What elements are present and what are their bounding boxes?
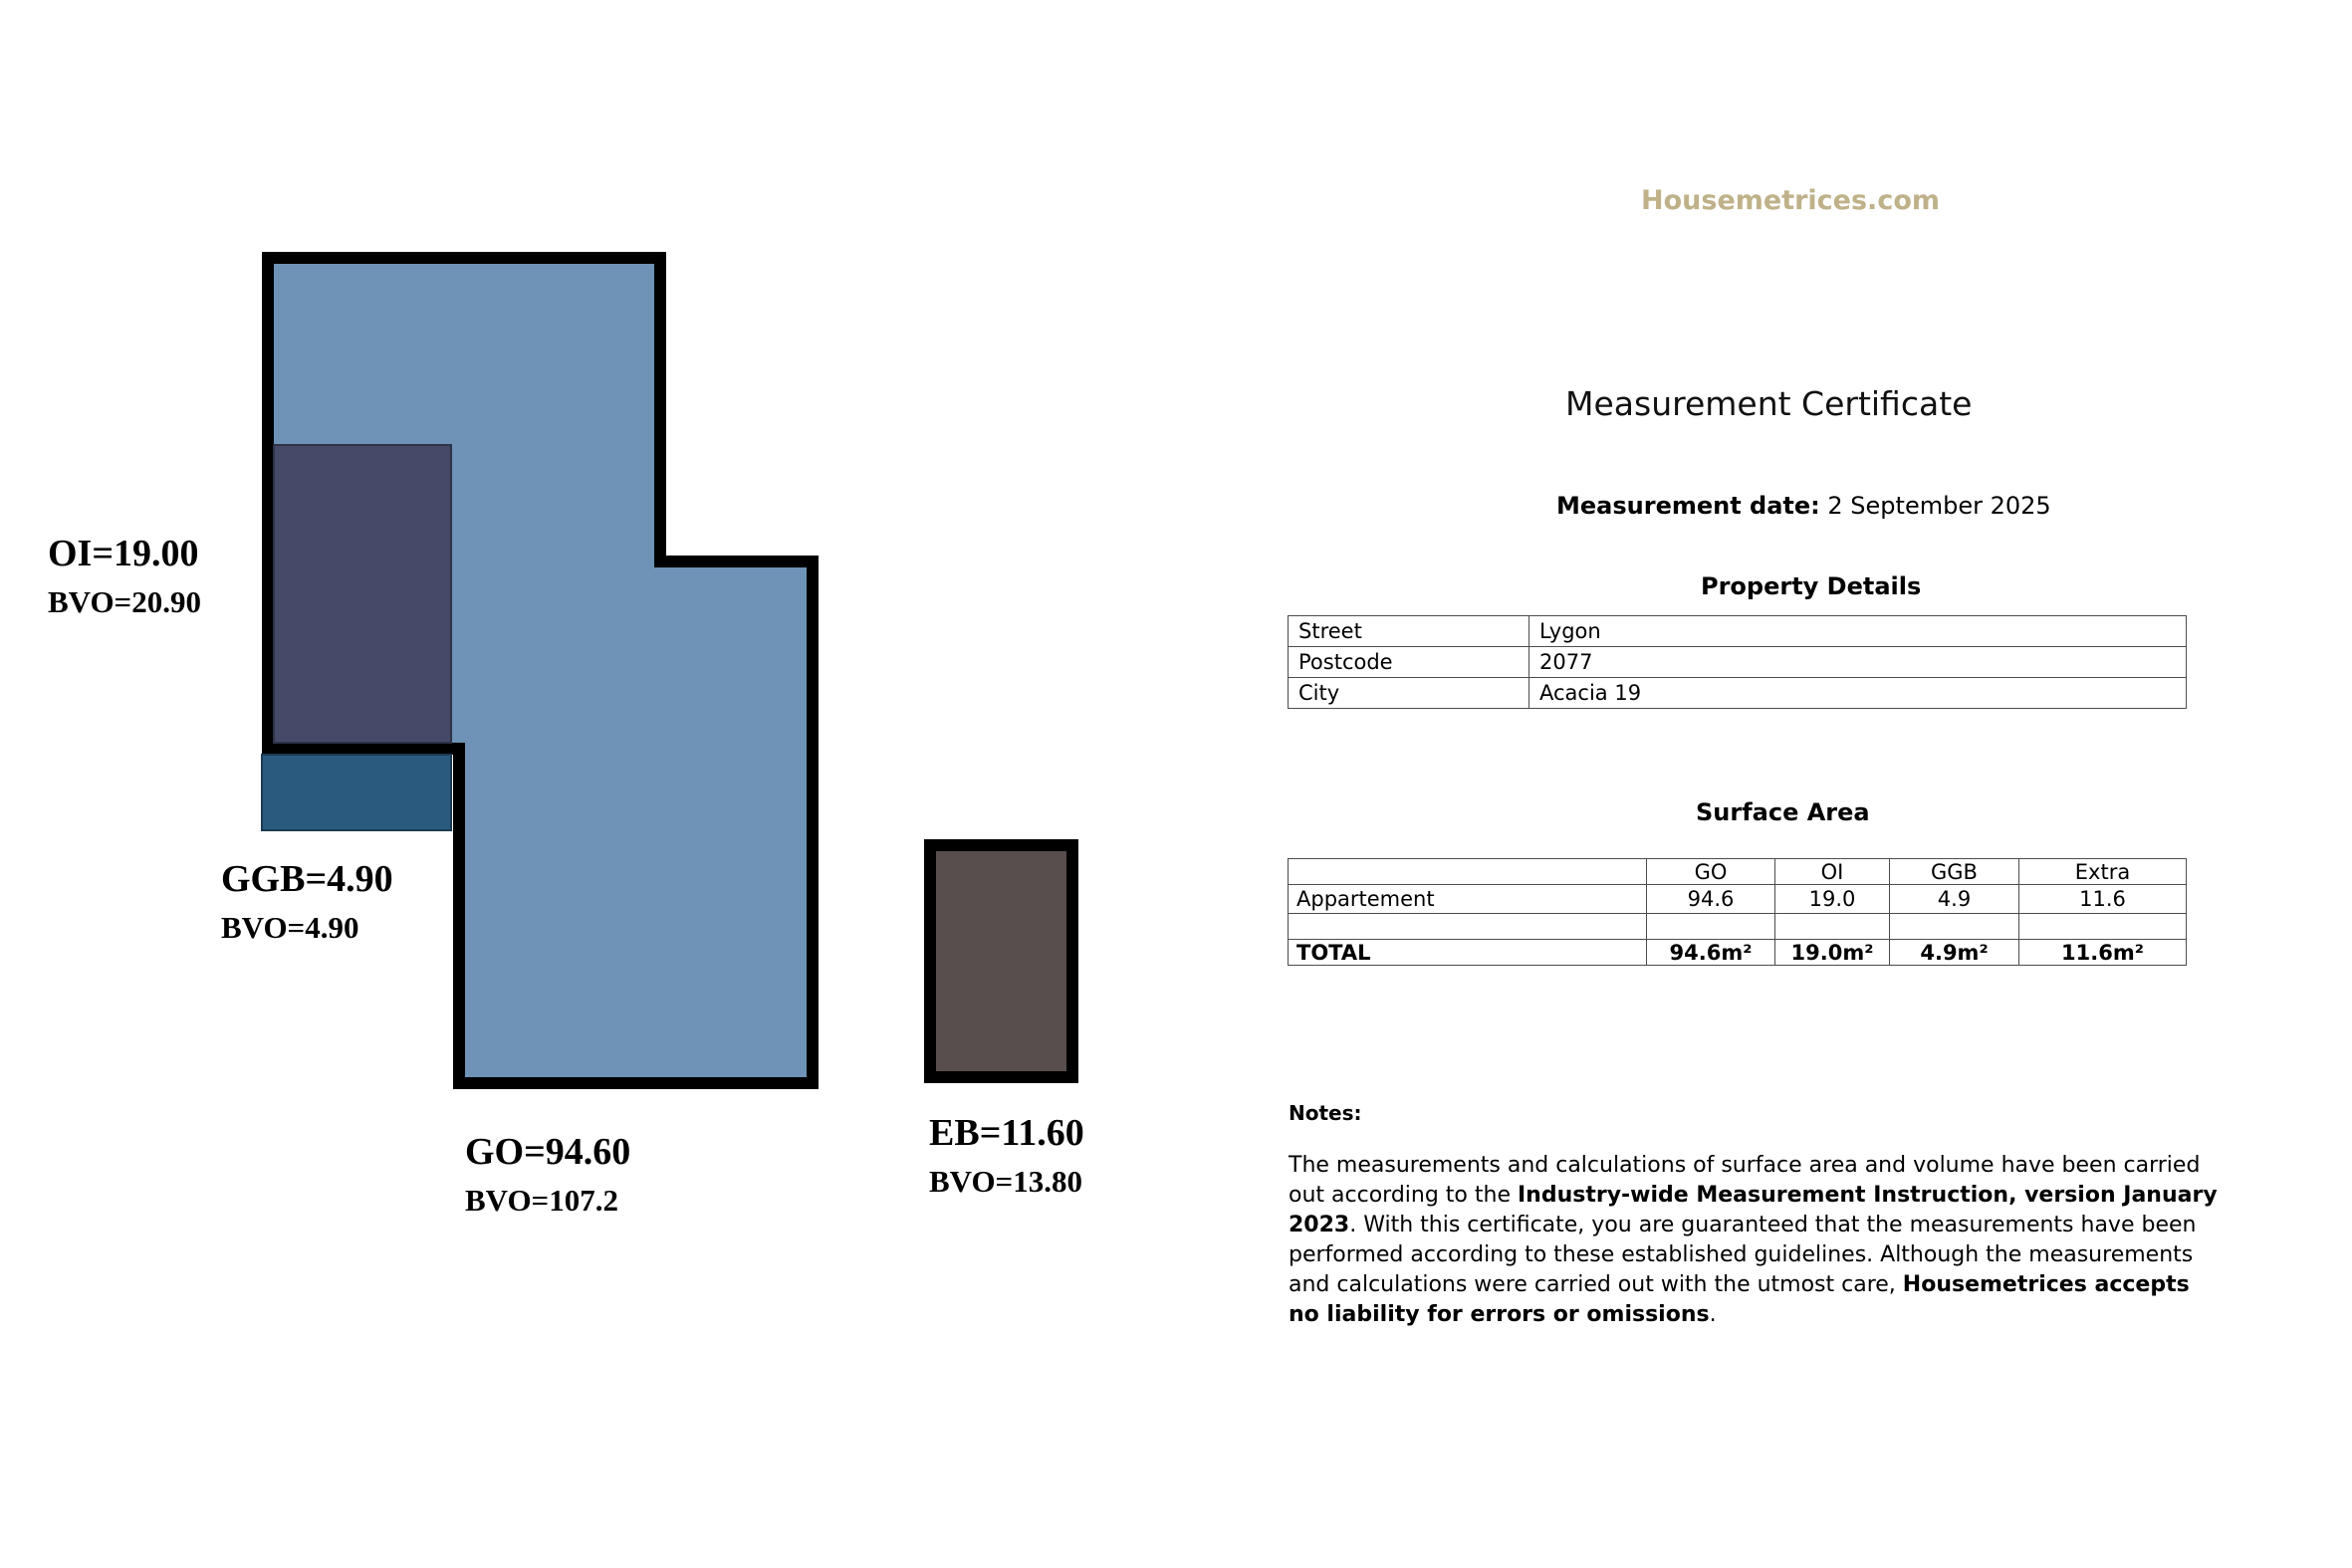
go-area-label: GO=94.60 — [465, 1129, 630, 1175]
table-row: Street Lygon — [1289, 616, 2187, 647]
brand-logo: Housemetrices.com — [1641, 185, 1940, 216]
table-cell — [1775, 914, 1890, 940]
table-cell: 2077 — [1529, 647, 2187, 678]
notes-heading: Notes: — [1289, 1101, 1362, 1125]
table-cell — [1647, 914, 1775, 940]
measurement-date-label: Measurement date: — [1556, 492, 1820, 520]
table-row — [1289, 914, 2187, 940]
oi-label: OI=19.00 BVO=20.90 — [48, 531, 201, 622]
eb-area-label: EB=11.60 — [929, 1110, 1084, 1156]
table-row: City Acacia 19 — [1289, 678, 2187, 709]
table-row: Postcode 2077 — [1289, 647, 2187, 678]
ggb-unit-shape — [262, 755, 451, 830]
table-cell: City — [1289, 678, 1529, 709]
table-cell: Lygon — [1529, 616, 2187, 647]
oi-unit-shape — [274, 445, 451, 743]
surface-area-heading: Surface Area — [1696, 798, 1870, 826]
oi-area-label: OI=19.00 — [48, 531, 201, 576]
table-cell: 94.6m² — [1647, 940, 1775, 966]
table-cell — [2019, 914, 2187, 940]
eb-label: EB=11.60 BVO=13.80 — [929, 1110, 1084, 1202]
property-details-table: Street Lygon Postcode 2077 City Acacia 1… — [1288, 615, 2187, 709]
surface-area-table: GO OI GGB Extra Appartement 94.6 19.0 4.… — [1288, 858, 2187, 966]
ggb-bvo-label: BVO=4.90 — [221, 908, 393, 948]
table-cell: 11.6m² — [2019, 940, 2187, 966]
certificate-page: OI=19.00 BVO=20.90 GGB=4.90 BVO=4.90 GO=… — [0, 0, 2352, 1568]
eb-unit-shape — [930, 845, 1072, 1077]
go-bvo-label: BVO=107.2 — [465, 1181, 630, 1221]
table-header-cell: GO — [1647, 859, 1775, 885]
table-total-row: TOTAL 94.6m² 19.0m² 4.9m² 11.6m² — [1289, 940, 2187, 966]
go-label: GO=94.60 BVO=107.2 — [465, 1129, 630, 1221]
notes-text: . — [1710, 1302, 1717, 1327]
table-cell: 4.9m² — [1890, 940, 2019, 966]
table-header-cell: OI — [1775, 859, 1890, 885]
measurement-date-value: 2 September 2025 — [1827, 492, 2050, 520]
table-cell: Postcode — [1289, 647, 1529, 678]
table-cell: Street — [1289, 616, 1529, 647]
table-cell — [1890, 914, 2019, 940]
table-cell: 4.9 — [1890, 885, 2019, 914]
property-details-heading: Property Details — [1701, 572, 1921, 600]
table-cell: 11.6 — [2019, 885, 2187, 914]
oi-bvo-label: BVO=20.90 — [48, 582, 201, 622]
table-row: Appartement 94.6 19.0 4.9 11.6 — [1289, 885, 2187, 914]
ggb-area-label: GGB=4.90 — [221, 856, 393, 902]
table-header-row: GO OI GGB Extra — [1289, 859, 2187, 885]
table-header-cell — [1289, 859, 1647, 885]
table-header-cell: Extra — [2019, 859, 2187, 885]
table-cell: Appartement — [1289, 885, 1647, 914]
floor-plan — [0, 0, 1175, 1294]
eb-bvo-label: BVO=13.80 — [929, 1162, 1084, 1202]
ggb-label: GGB=4.90 BVO=4.90 — [221, 856, 393, 948]
table-cell: 19.0 — [1775, 885, 1890, 914]
measurement-date: Measurement date: 2 September 2025 — [1556, 492, 2051, 520]
page-title: Measurement Certificate — [1565, 384, 1972, 423]
table-cell: 94.6 — [1647, 885, 1775, 914]
table-cell: Acacia 19 — [1529, 678, 2187, 709]
table-header-cell: GGB — [1890, 859, 2019, 885]
notes-paragraph: The measurements and calculations of sur… — [1289, 1151, 2221, 1330]
table-cell: 19.0m² — [1775, 940, 1890, 966]
table-cell — [1289, 914, 1647, 940]
table-cell: TOTAL — [1289, 940, 1647, 966]
